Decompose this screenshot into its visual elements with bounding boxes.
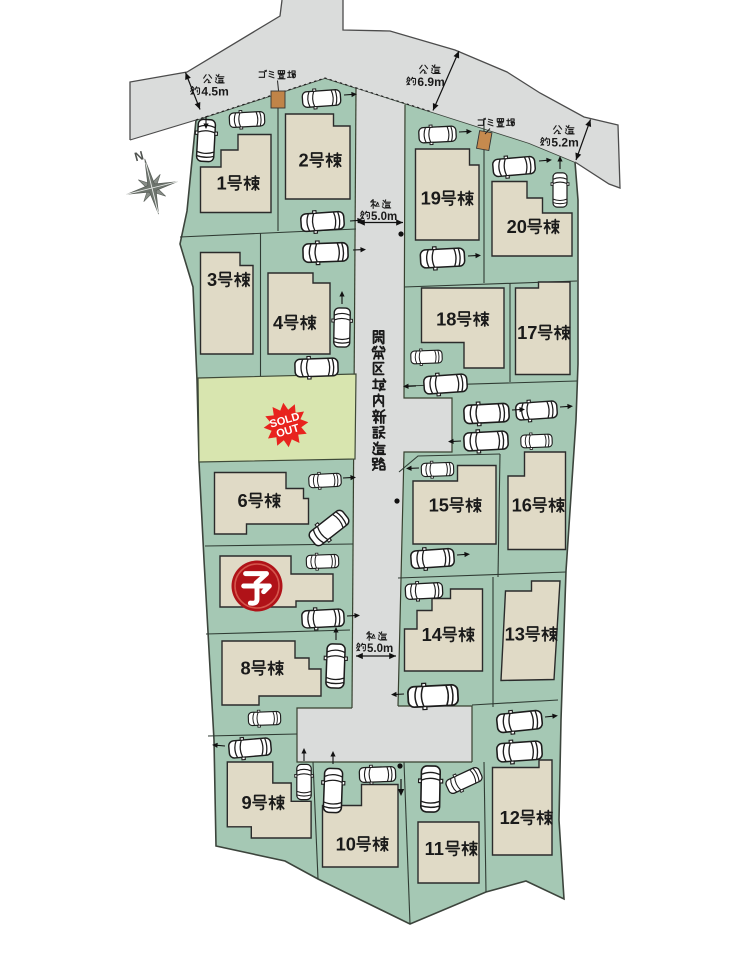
svg-text:6: 6: [238, 490, 248, 511]
svg-text:12: 12: [500, 807, 520, 828]
svg-text:2: 2: [299, 149, 309, 170]
svg-text:1: 1: [217, 172, 227, 193]
svg-text:19: 19: [421, 188, 441, 209]
svg-text:6.9m: 6.9m: [417, 75, 444, 89]
svg-text:5.0m: 5.0m: [371, 211, 397, 223]
svg-text:14: 14: [422, 624, 443, 645]
svg-text:20: 20: [507, 216, 527, 237]
svg-text:8: 8: [241, 657, 251, 678]
svg-text:18: 18: [436, 308, 456, 329]
svg-text:11: 11: [425, 838, 444, 859]
svg-text:16: 16: [512, 494, 532, 515]
svg-text:10: 10: [336, 833, 356, 854]
svg-text:4: 4: [273, 312, 284, 333]
svg-text:4.5m: 4.5m: [201, 85, 228, 99]
svg-text:15: 15: [429, 494, 449, 515]
svg-text:5.2m: 5.2m: [551, 136, 578, 150]
svg-text:17: 17: [517, 322, 537, 343]
svg-text:13: 13: [505, 623, 525, 644]
svg-text:9: 9: [242, 792, 252, 813]
svg-text:3: 3: [207, 269, 217, 290]
